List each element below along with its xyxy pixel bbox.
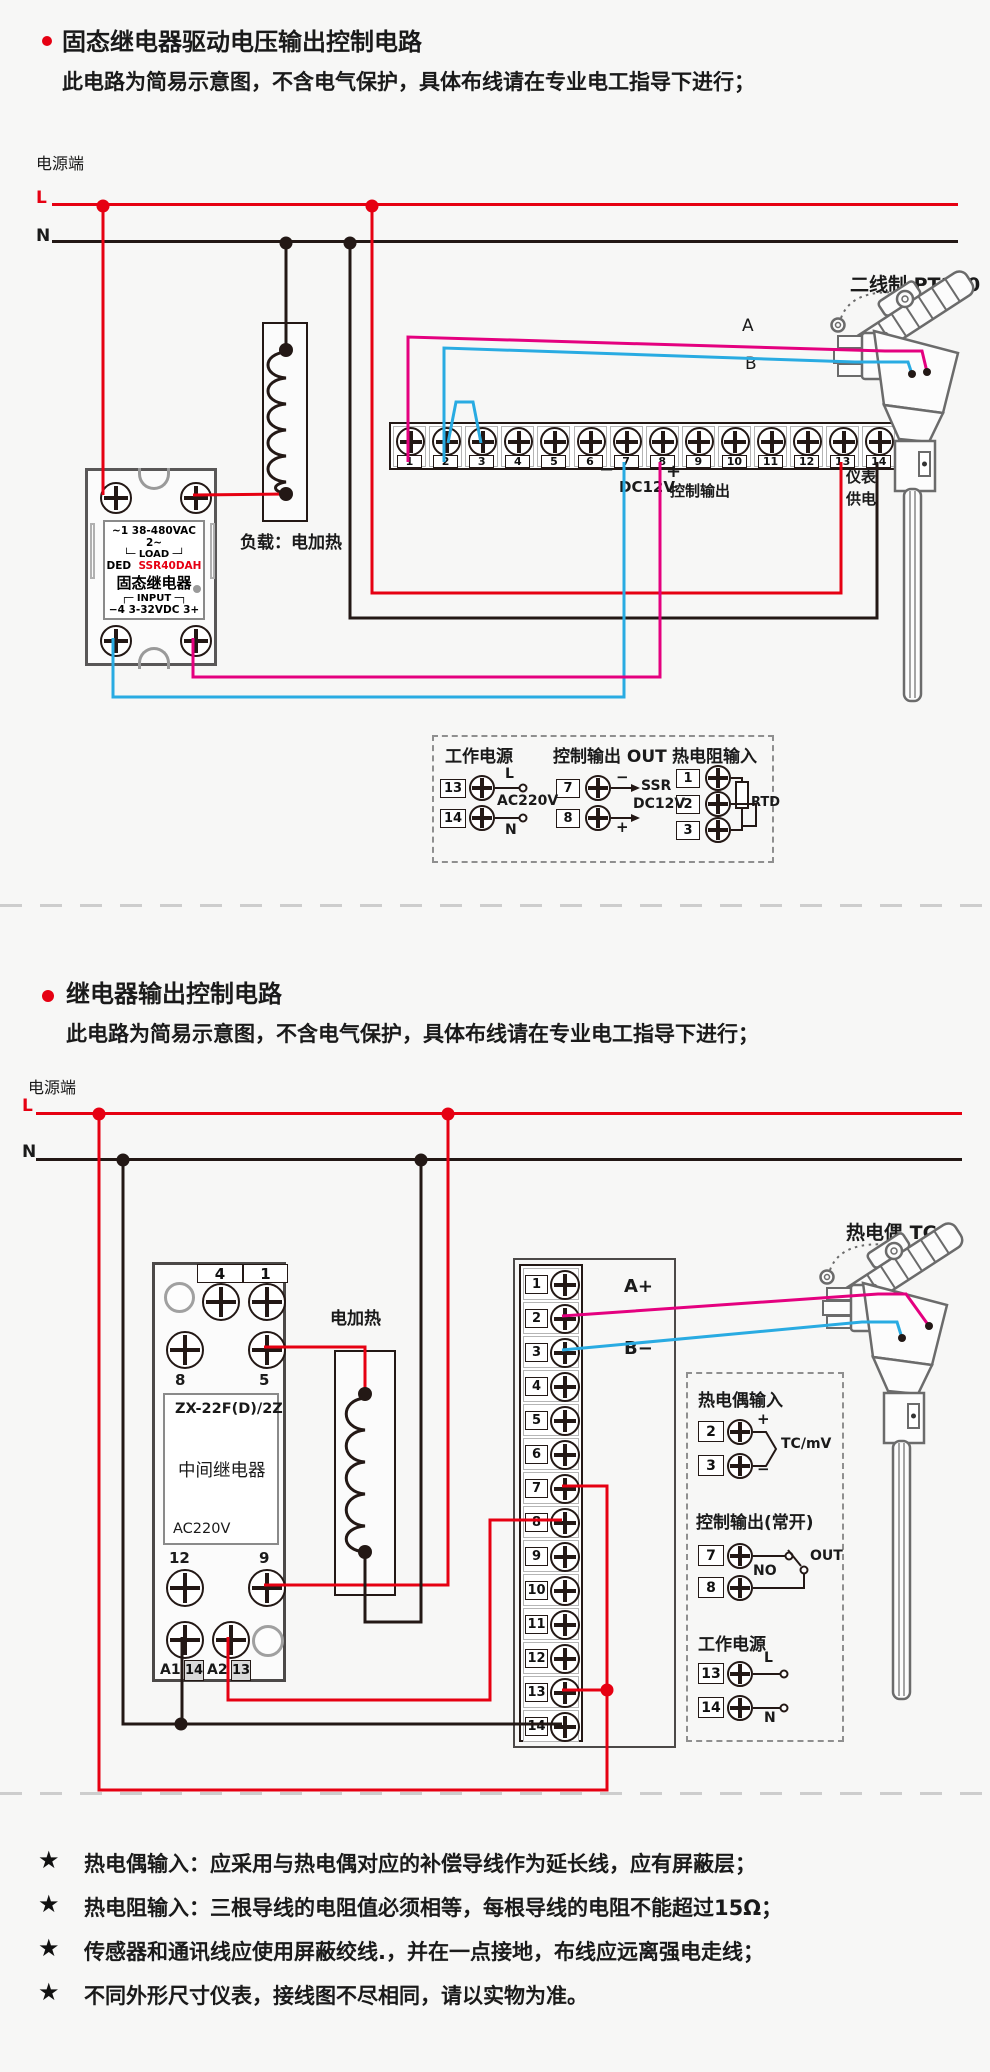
tc-head (821, 1206, 966, 1699)
wire-group-section2 (99, 1114, 929, 1790)
wiring-diagram-page: 固态继电器驱动电压输出控制电路 此电路为简易示意图，不含电气保护，具体布线请在专… (0, 0, 990, 2072)
pt100-head (832, 254, 977, 701)
wiring-layer (0, 0, 990, 2072)
junction-dots (93, 200, 934, 1731)
wire-group-section1 (103, 206, 927, 697)
legend-symbols (495, 778, 808, 1712)
